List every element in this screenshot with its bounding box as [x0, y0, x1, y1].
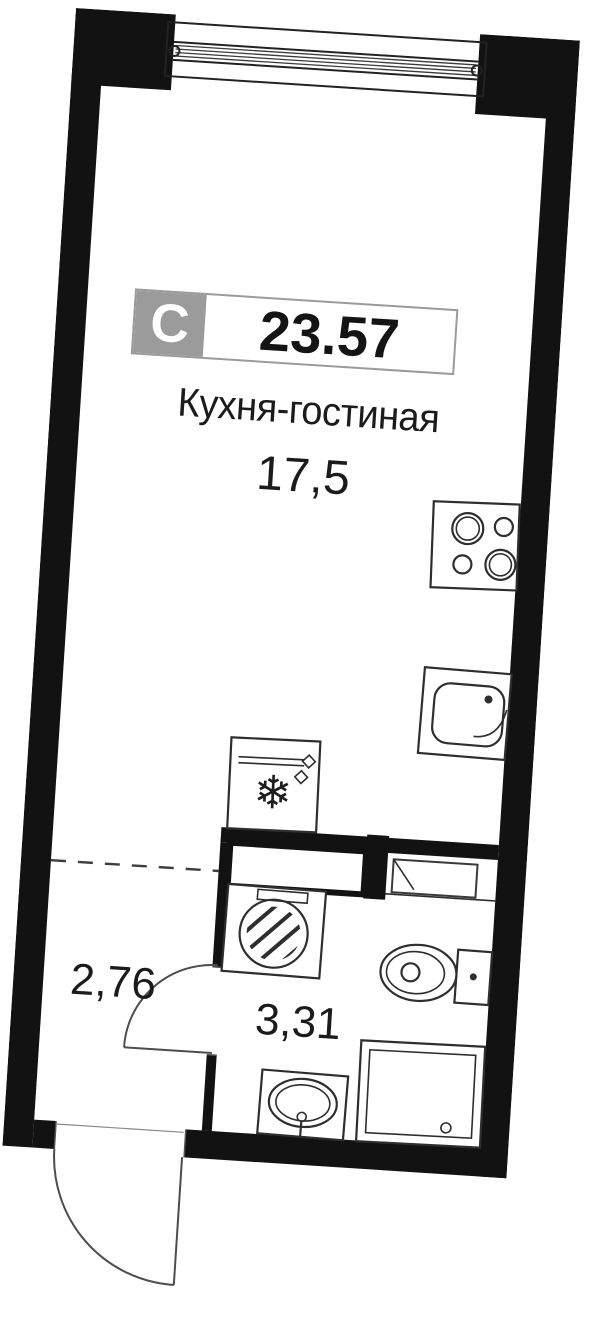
- floor-plan-page: ❄: [0, 0, 600, 1295]
- wall-right: [477, 103, 575, 1179]
- bathroom-left-wall-lower: [202, 1055, 217, 1131]
- fridge-snowflake-glyph: ❄: [252, 764, 293, 820]
- zone-divider-dashed-line: [51, 860, 219, 871]
- floor-plan-drawing: ❄: [0, 8, 580, 1328]
- unit-total-area: 23.57: [203, 295, 456, 373]
- toilet-icon: [379, 942, 493, 1006]
- floor-plan: ❄: [0, 8, 580, 1328]
- washbasin-body: [257, 1069, 348, 1140]
- bathroom-door-leaf: [124, 1047, 212, 1053]
- window-icon: [165, 22, 487, 96]
- kitchen-sink-body: [418, 667, 512, 760]
- kitchen-sink-icon: [418, 667, 512, 760]
- fridge-icon: ❄: [227, 737, 320, 832]
- shower-icon: [356, 1040, 485, 1147]
- washbasin-icon: [257, 1069, 348, 1140]
- unit-type-badge: С: [133, 291, 207, 357]
- washbasin-tap-stem: [300, 1121, 301, 1137]
- bath-door-jamb-bottom: [207, 1055, 217, 1056]
- wall-bottom-left-stub: [32, 1120, 56, 1149]
- entry-threshold-line: [56, 1124, 184, 1132]
- bathroom-wall-stub: [363, 835, 389, 900]
- entrance-door-leaf: [174, 1157, 182, 1285]
- shower-tray: [356, 1040, 485, 1147]
- entrance-door-icon: [46, 1149, 182, 1285]
- washing-machine-icon: [221, 884, 326, 990]
- entrance-door-swing-arc: [46, 1149, 182, 1285]
- washing-machine-body: [222, 884, 327, 978]
- sliding-door-pocket: [392, 859, 478, 897]
